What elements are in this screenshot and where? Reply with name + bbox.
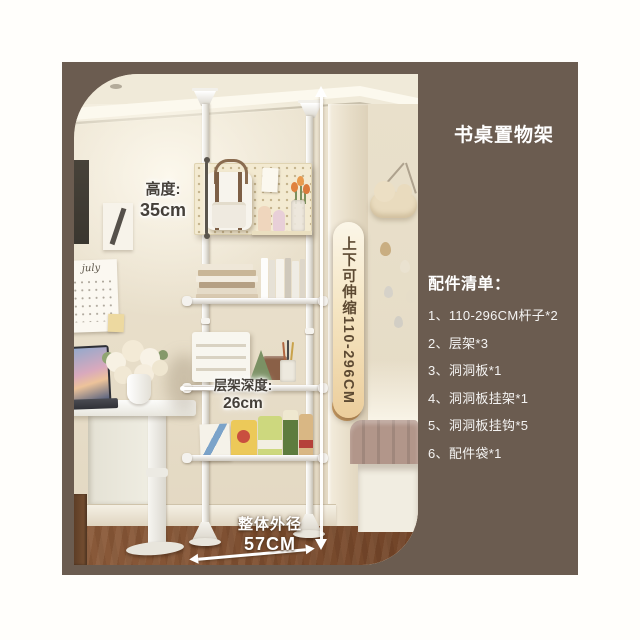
calendar-month-text: july xyxy=(74,262,117,275)
height-annotation: 高度: 35cm xyxy=(130,180,196,221)
raindrop-ornament xyxy=(394,316,403,328)
snack-box xyxy=(231,420,257,460)
raindrop-ornament xyxy=(400,260,410,273)
height-value: 35cm xyxy=(130,199,196,221)
depth-value: 26cm xyxy=(208,394,278,413)
height-label: 高度: xyxy=(130,180,196,199)
letter-tray xyxy=(192,332,250,382)
accessories-item: 5、洞洞板挂钩*5 xyxy=(428,412,558,440)
sticky-note xyxy=(108,314,125,333)
pole-foot-left xyxy=(189,538,221,546)
tulip-flower xyxy=(303,184,310,194)
pole-collar xyxy=(201,318,210,324)
flower-vase xyxy=(127,374,151,404)
raindrop-ornament xyxy=(406,290,416,303)
upright-books xyxy=(261,258,305,300)
tray-slot xyxy=(196,344,246,347)
extend-range-arrow xyxy=(320,96,323,540)
bag-pocket xyxy=(212,202,246,228)
chips-can xyxy=(299,414,313,460)
pinned-card xyxy=(261,168,278,193)
product-title: 书桌置物架 xyxy=(424,120,584,147)
tulip-flower xyxy=(297,176,304,186)
stacked-books xyxy=(196,264,258,300)
info-column: 书桌置物架 配件清单： 1、110-296CM杆子*2 2、层架*3 3、洞洞板… xyxy=(418,62,578,575)
pencil-cup xyxy=(280,360,296,382)
bench-cushion xyxy=(350,420,418,464)
accessories-item: 4、洞洞板挂架*1 xyxy=(428,385,558,413)
accessories-list: 1、110-296CM杆子*2 2、层架*3 3、洞洞板*1 4、洞洞板挂架*1… xyxy=(428,302,558,467)
book-spine xyxy=(269,260,275,300)
recessed-light xyxy=(76,90,86,95)
raindrop-ornament xyxy=(380,242,391,256)
desk-leg-collar xyxy=(146,468,168,477)
book-spine xyxy=(300,259,305,300)
tray-slot xyxy=(196,368,246,371)
calendar-grid xyxy=(74,277,113,322)
raindrop-ornament xyxy=(384,286,393,298)
overall-width-value: 57CM xyxy=(220,534,320,555)
doll-figure xyxy=(273,210,285,232)
doll-figure xyxy=(258,206,271,232)
depth-annotation: 层架深度: 26cm xyxy=(208,377,278,413)
wood-furniture-edge xyxy=(74,494,87,565)
desk-privacy-panel xyxy=(88,416,150,504)
tray-slot xyxy=(196,356,246,359)
accessories-item: 1、110-296CM杆子*2 xyxy=(428,302,558,330)
accessories-item: 2、层架*3 xyxy=(428,330,558,358)
book-spine xyxy=(261,258,268,300)
book-spine xyxy=(285,258,290,300)
overall-width-annotation: 整体外径 57CM xyxy=(220,515,320,555)
book-spine xyxy=(276,259,284,300)
depth-label: 层架深度: xyxy=(208,377,278,394)
chips-can xyxy=(283,410,298,460)
accessories-heading: 配件清单： xyxy=(428,270,511,294)
pencil xyxy=(287,340,289,360)
overall-width-label: 整体外径 xyxy=(220,515,320,534)
snack-box xyxy=(258,416,282,460)
wall-poster xyxy=(74,160,89,244)
shelf-bar xyxy=(186,455,324,461)
tote-bag xyxy=(206,172,252,230)
pole-ceiling-plate xyxy=(192,88,218,91)
pegboard-ledge xyxy=(252,231,312,235)
laptop-keyboard xyxy=(74,398,118,410)
shelf-bar xyxy=(186,298,324,304)
tulip-vase xyxy=(291,200,305,232)
bench-base xyxy=(358,464,418,532)
book-spine xyxy=(292,261,299,300)
accessories-item: 6、配件袋*1 xyxy=(428,440,558,468)
cloud-wall-hanging xyxy=(370,192,417,218)
room-photo: july xyxy=(74,74,418,565)
art-print xyxy=(103,203,133,250)
flower xyxy=(152,360,168,376)
window-glow xyxy=(368,360,418,426)
desk-leg xyxy=(148,416,166,546)
art-print-graphic xyxy=(103,203,133,250)
accessories-item: 3、洞洞板*1 xyxy=(428,357,558,385)
extend-range-pill: 上下可伸缩110-296CM xyxy=(333,222,364,418)
brown-panel: july xyxy=(62,62,578,575)
recessed-light xyxy=(110,84,122,89)
height-measure-line xyxy=(205,162,208,234)
product-card: july xyxy=(0,0,640,640)
pole-collar xyxy=(305,328,314,334)
